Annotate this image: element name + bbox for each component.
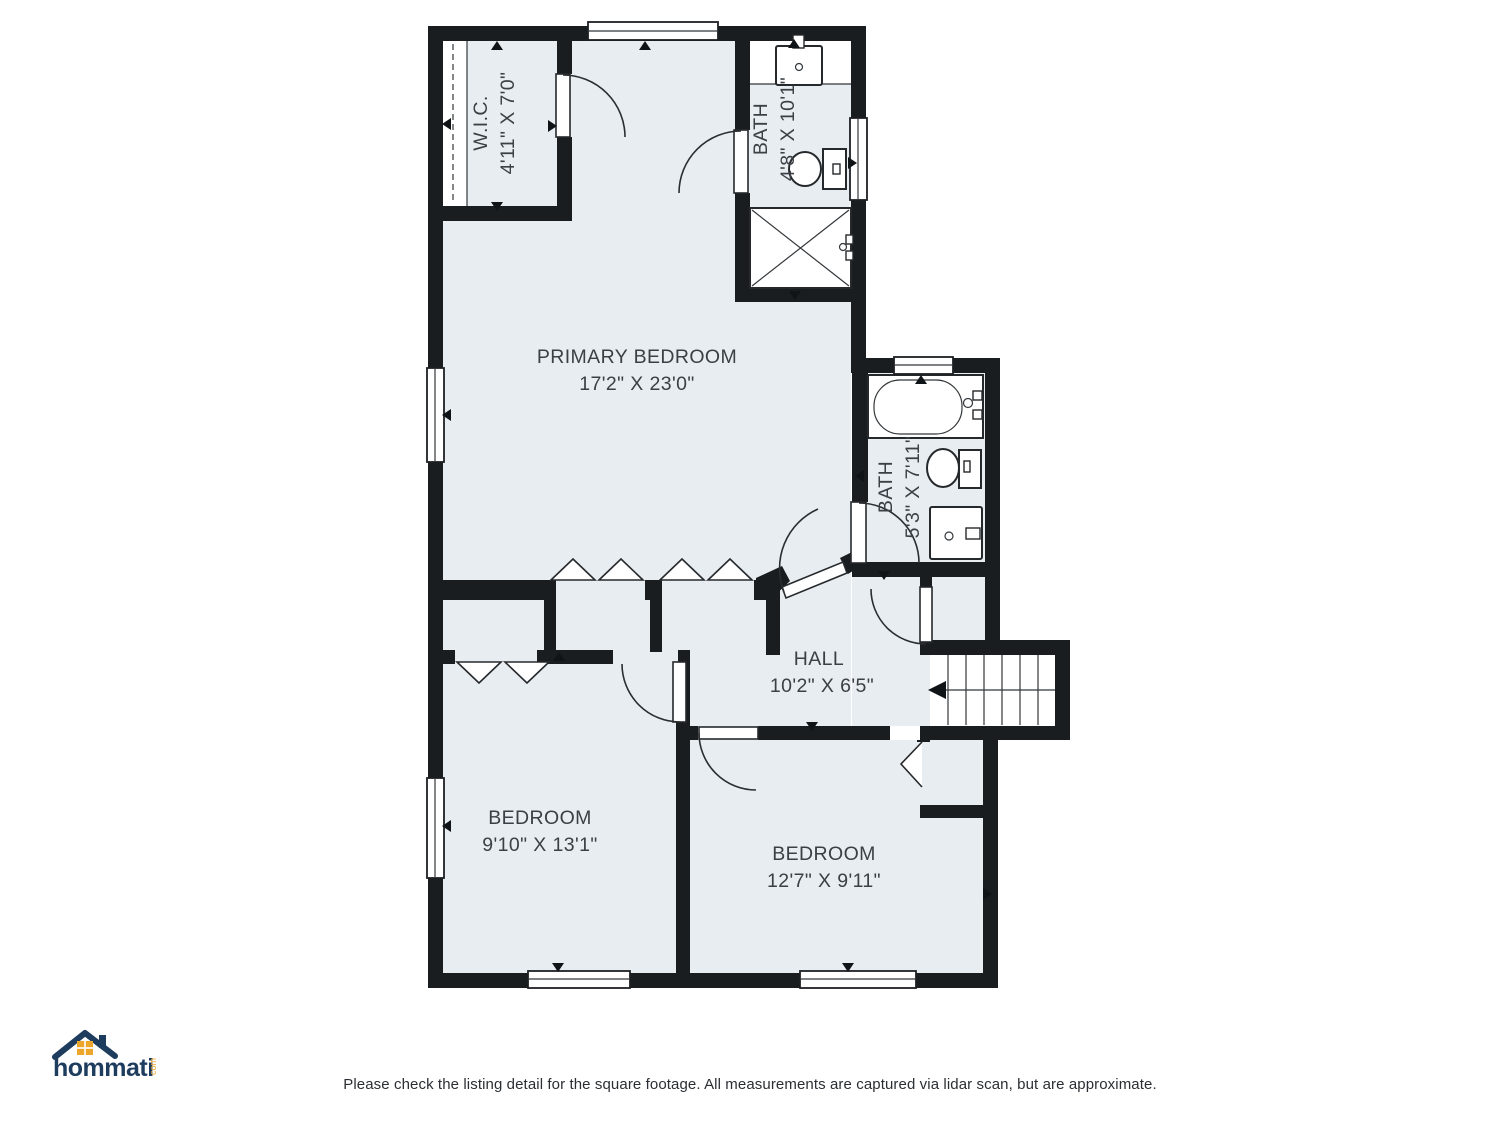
- floor-hall-east: [852, 563, 930, 740]
- disclaimer-text: Please check the listing detail for the …: [0, 1076, 1500, 1093]
- bedroom-left-door: [673, 662, 686, 722]
- room-label-bath-top: BATH: [750, 103, 772, 155]
- floor-plan: PRIMARY BEDROOM 17'2" X 23'0" W.I.C. 4'1…: [0, 0, 1500, 1125]
- bath-top-door: [734, 130, 748, 193]
- room-dims-primary-bedroom: 17'2" X 23'0": [579, 373, 694, 395]
- hommati-logo: hommati com: [52, 1024, 162, 1082]
- room-label-hall: HALL: [794, 648, 844, 670]
- room-dims-bedroom-left: 9'10" X 13'1": [482, 834, 597, 856]
- room-label-bath-right: BATH: [875, 461, 897, 513]
- toilet-button-icon: [833, 164, 840, 174]
- room-dims-wic: 4'11" X 7'0": [497, 72, 519, 175]
- sink-faucet-icon: [966, 528, 980, 539]
- bath-right-door: [851, 502, 866, 563]
- toilet-bowl-symbol: [927, 449, 959, 487]
- room-label-bedroom-left: BEDROOM: [488, 807, 592, 829]
- logo-chimney-icon: [99, 1035, 106, 1048]
- hall-closet-door: [920, 587, 932, 642]
- room-dims-bath-right: 5'3" X 7'11": [902, 436, 924, 539]
- logo-suffix: com: [148, 1058, 158, 1075]
- room-dims-bedroom-right: 12'7" X 9'11": [767, 870, 881, 892]
- floorplan-page: PRIMARY BEDROOM 17'2" X 23'0" W.I.C. 4'1…: [0, 0, 1500, 1125]
- room-dims-hall: 10'2" X 6'5": [770, 675, 874, 697]
- toilet-button-icon: [964, 461, 970, 472]
- bedroom-right-door: [699, 727, 758, 739]
- wic-door: [556, 74, 570, 137]
- room-label-bedroom-right: BEDROOM: [772, 843, 876, 865]
- room-dims-bath-top: 4'8" X 10'1": [777, 77, 799, 181]
- room-label-primary-bedroom: PRIMARY BEDROOM: [537, 346, 737, 368]
- room-label-wic: W.I.C.: [470, 95, 492, 150]
